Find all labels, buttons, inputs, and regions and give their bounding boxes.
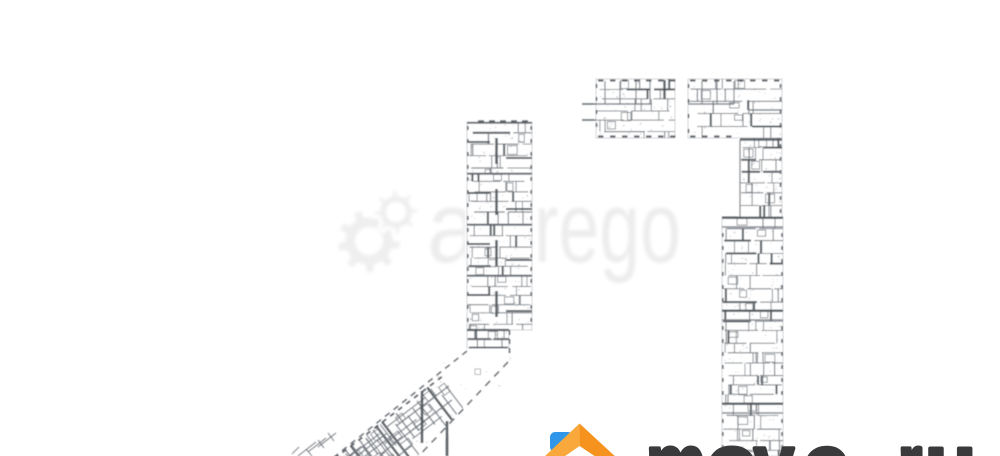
svg-text:u: u [925, 417, 976, 456]
svg-text:m: m [646, 417, 706, 456]
svg-text:v: v [754, 417, 794, 456]
svg-text:rego: rego [534, 172, 681, 284]
svg-text:r: r [898, 417, 922, 456]
svg-text:e: e [803, 417, 850, 456]
svg-text:o: o [706, 417, 757, 456]
